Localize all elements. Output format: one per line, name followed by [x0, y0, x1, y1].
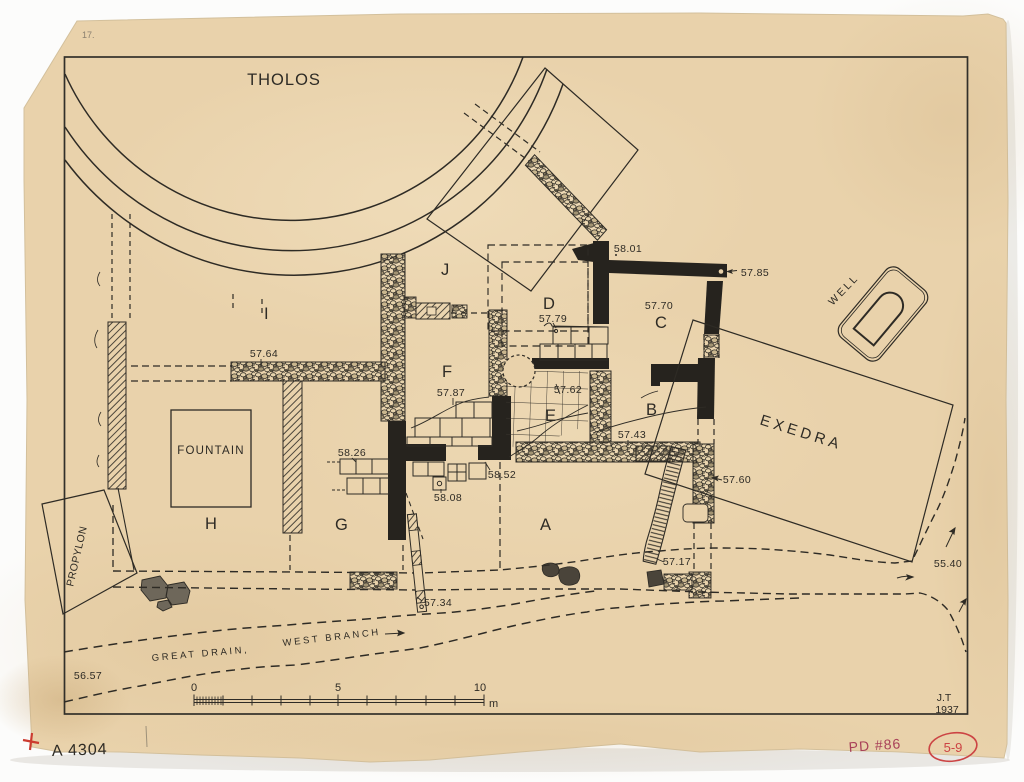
- svg-text:17.: 17.: [82, 30, 95, 40]
- svg-text:57.43: 57.43: [618, 429, 646, 441]
- svg-text:5-9: 5-9: [944, 740, 963, 755]
- svg-text:C: C: [655, 314, 668, 332]
- svg-text:THOLOS: THOLOS: [247, 71, 321, 89]
- svg-text:58.52: 58.52: [488, 469, 516, 481]
- svg-text:58.08: 58.08: [434, 492, 462, 504]
- svg-text:57.87: 57.87: [437, 387, 465, 399]
- svg-text:G: G: [335, 516, 349, 534]
- svg-text:FOUNTAIN: FOUNTAIN: [177, 445, 245, 457]
- svg-text:5: 5: [335, 682, 341, 694]
- svg-text:D: D: [543, 295, 556, 313]
- svg-text:58.26: 58.26: [338, 447, 366, 459]
- svg-text:J.T: J.T: [937, 692, 952, 704]
- svg-text:A: A: [540, 516, 552, 534]
- svg-text:J: J: [441, 261, 450, 279]
- svg-text:m: m: [489, 698, 498, 710]
- svg-text:56.57: 56.57: [74, 670, 102, 682]
- svg-text:F: F: [442, 363, 453, 381]
- svg-text:H: H: [205, 515, 218, 533]
- svg-text:57.70: 57.70: [645, 300, 673, 312]
- svg-text:1937: 1937: [935, 704, 959, 716]
- svg-text:A 4304: A 4304: [52, 741, 108, 760]
- svg-text:0: 0: [191, 682, 197, 694]
- svg-text:57.85: 57.85: [741, 267, 769, 279]
- svg-text:57.34: 57.34: [424, 597, 452, 609]
- svg-text:55.40: 55.40: [934, 558, 962, 570]
- svg-text:57.17: 57.17: [663, 556, 691, 568]
- svg-text:57.60: 57.60: [723, 474, 751, 486]
- svg-text:57.64: 57.64: [250, 348, 278, 360]
- svg-text:10: 10: [474, 682, 486, 694]
- svg-text:I: I: [264, 305, 270, 323]
- svg-text:58.01: 58.01: [614, 243, 642, 255]
